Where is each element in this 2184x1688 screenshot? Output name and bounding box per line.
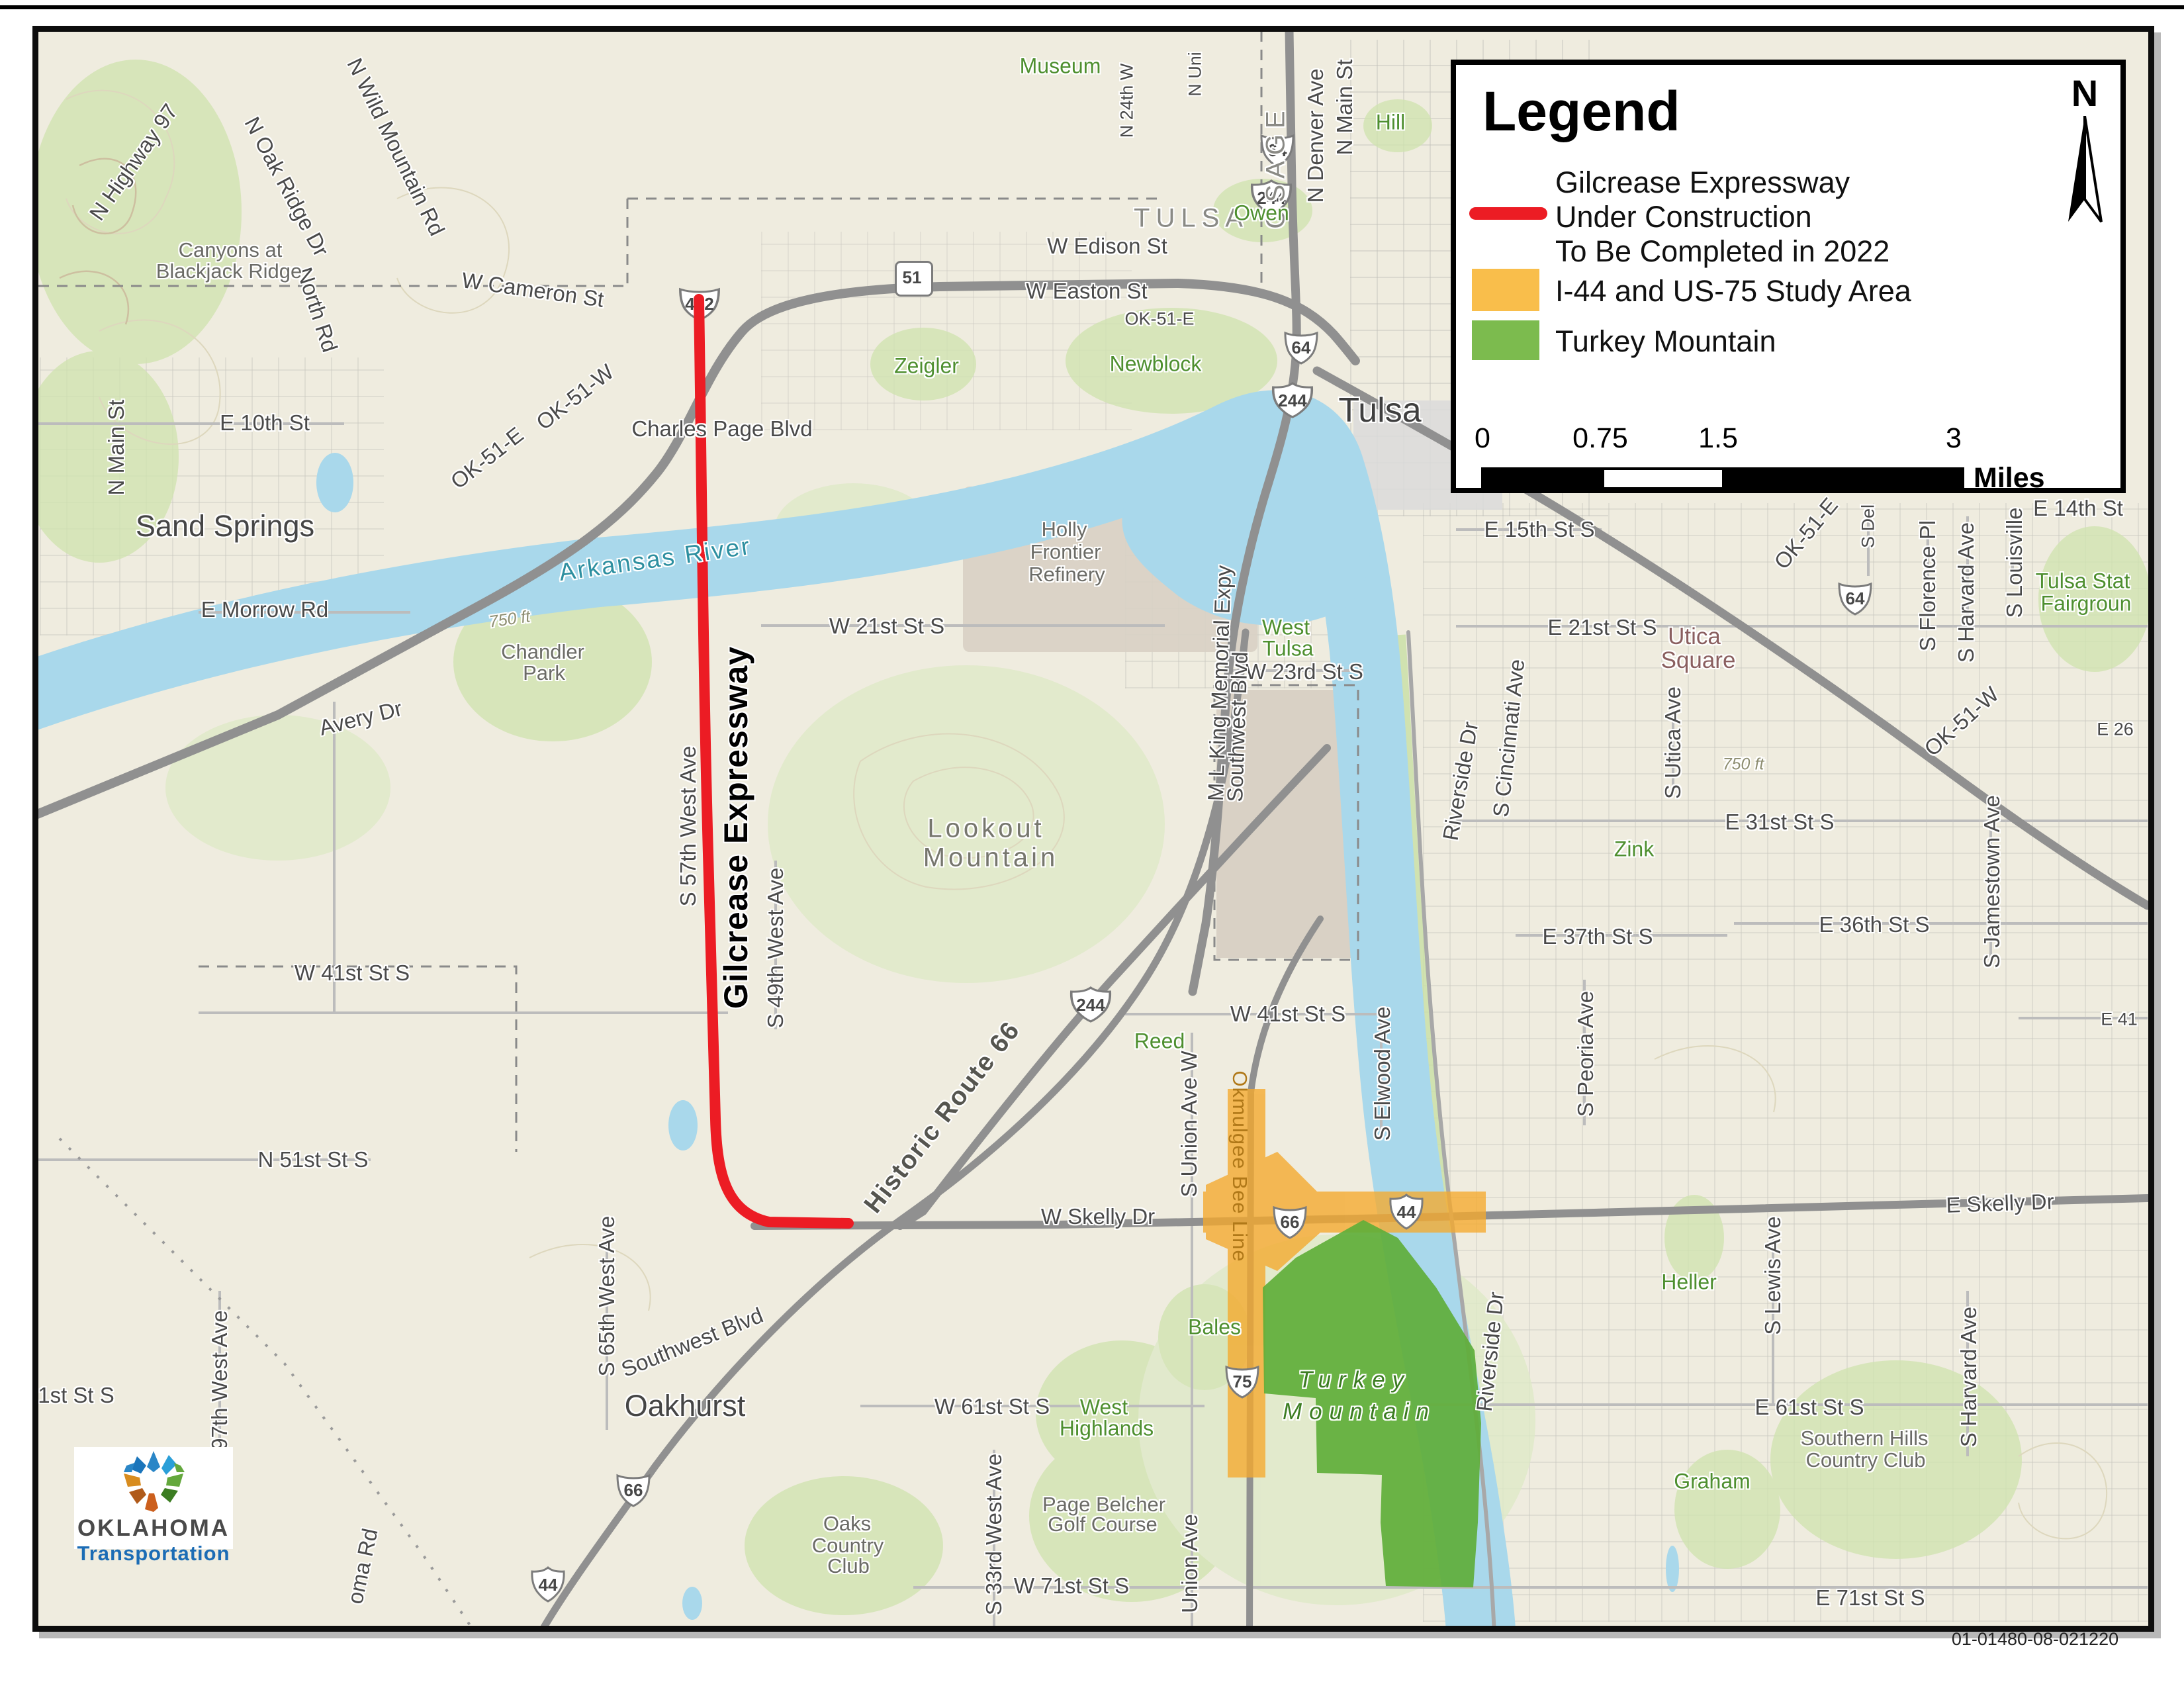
map-label: Hill: [1376, 111, 1405, 135]
map-label: Country Club: [1806, 1448, 1926, 1472]
map-label: Sand Springs: [136, 509, 314, 543]
map-label: Oaks: [823, 1512, 871, 1536]
map-label: W 41st St S: [295, 961, 410, 986]
legend-title: Legend: [1482, 79, 1680, 144]
map-label: Chandler: [501, 640, 584, 664]
map-label: Turkey: [1298, 1367, 1411, 1393]
north-arrow-icon: [2062, 116, 2108, 225]
map-label: Arkansas River: [557, 532, 753, 586]
map-label: OK-51-E: [1769, 493, 1843, 575]
odot-logo: OKLAHOMA Transportation: [74, 1447, 233, 1549]
map-label: Reed: [1134, 1029, 1185, 1054]
map-label: N Uni: [1185, 52, 1206, 97]
page: 412516424464244642446644664475 N Highway…: [0, 0, 2184, 1688]
scale-tick-2: 1.5: [1698, 422, 1738, 455]
map-label: W Edison St: [1047, 234, 1167, 259]
map-label: S Peoria Ave: [1573, 991, 1598, 1117]
map-label: W Easton St: [1026, 279, 1147, 304]
map-label: W 71st St S: [1014, 1573, 1129, 1599]
map-label: Tulsa: [1338, 391, 1421, 430]
map-label: Okmulgee Bee Line: [1228, 1070, 1251, 1262]
scale-tick-1: 0.75: [1572, 422, 1628, 455]
map-label: Owen: [1234, 201, 1289, 226]
map-label: Fairgroun: [2041, 592, 2132, 616]
map-label: Bales: [1188, 1315, 1241, 1340]
map-label: Southern Hills: [1801, 1427, 1929, 1450]
map-label: S Jamestown Ave: [1979, 795, 2005, 968]
map-label: E 15th St S: [1484, 517, 1595, 542]
map-label: N Denver Ave: [1303, 69, 1328, 203]
map-label: W 23rd St S: [1246, 659, 1363, 684]
map-label: 1st St S: [38, 1383, 114, 1408]
map-label: N Highway 97: [85, 99, 183, 225]
map-label: Highlands: [1060, 1417, 1154, 1441]
map-label: S 33rd West Ave: [981, 1454, 1007, 1616]
map-label: N 24th W: [1117, 64, 1138, 138]
map-label: E 26: [2097, 720, 2134, 740]
map-label: W 61st St S: [934, 1394, 1050, 1419]
map-label: Mountain: [923, 843, 1059, 873]
map-label: Frontier: [1030, 540, 1101, 564]
odot-star-icon: [117, 1450, 190, 1513]
map-label: Zeigler: [894, 354, 959, 379]
map-label: Canyons at: [179, 238, 283, 262]
map-label: S Elwood Ave: [1370, 1006, 1395, 1141]
map-label: E 37th St S: [1543, 924, 1653, 949]
map-label: Mountain: [1283, 1399, 1436, 1425]
scale-unit: Miles: [1974, 462, 2045, 494]
map-label: Museum: [1020, 54, 1101, 79]
map-label: S 65th West Ave: [594, 1216, 619, 1377]
map-label: Union Ave: [1177, 1514, 1203, 1613]
legend-panel: Legend N Gilcrease Expressway Under Cons…: [1451, 60, 2126, 493]
map-label: Graham: [1674, 1470, 1751, 1494]
map-label: N 51st St S: [258, 1147, 369, 1172]
map-label: S Utica Ave: [1661, 686, 1686, 799]
map-label: Holly: [1042, 518, 1087, 541]
map-label: Utica: [1668, 624, 1721, 650]
map-label: S Union Ave W: [1177, 1051, 1202, 1197]
map-label: E Skelly Dr: [1946, 1189, 2054, 1218]
map-label: E 21st St S: [1547, 615, 1657, 640]
top-rule: [0, 5, 2184, 9]
map-label: Southwest Blvd: [617, 1303, 766, 1382]
map-label: TULSA: [1134, 204, 1249, 234]
map-label: Avery Dr: [316, 696, 404, 741]
map-label: 97th West Ave: [207, 1310, 232, 1450]
map-label: E 71st St S: [1815, 1585, 1925, 1611]
map-label: Charles Page Blvd: [631, 416, 812, 442]
map-label: Blackjack Ridge: [156, 259, 302, 283]
scale-tick-3: 3: [1946, 422, 1962, 455]
map-label: S Lewis Ave: [1760, 1216, 1786, 1335]
map-label: E 10th St: [220, 410, 310, 436]
map-label: E 31st St S: [1725, 810, 1834, 835]
legend-study-area-swatch: [1472, 269, 1539, 311]
legend-construction-swatch: [1469, 207, 1547, 220]
map-label: Refinery: [1028, 563, 1105, 586]
map-label: Newblock: [1110, 352, 1202, 377]
north-label: N: [2048, 71, 2121, 115]
map-label: Riverside Dr: [1438, 720, 1484, 842]
map-label: N Main St: [1332, 60, 1357, 156]
map-label: Club: [827, 1554, 870, 1578]
map-label: oma Rd: [342, 1526, 383, 1607]
map-label: N Wild Mountain Rd: [342, 54, 450, 240]
map-label: W Cameron St: [460, 267, 606, 312]
map-label: E 14th St: [2033, 496, 2123, 521]
map-label: W 21st St S: [829, 614, 944, 639]
map-label: S Cincinnati Ave: [1488, 658, 1530, 818]
map-label: Golf Course: [1048, 1513, 1157, 1536]
map-label: S Harvard Ave: [1954, 522, 1979, 663]
map-label: S Del: [1858, 504, 1879, 548]
map-label: E 61st St S: [1754, 1395, 1864, 1420]
map-label: 750 ft: [488, 607, 531, 632]
north-arrow: N: [2048, 71, 2121, 228]
map-label: N Main St: [104, 400, 129, 496]
map-label: OK-51-E: [1124, 309, 1194, 330]
map-label: Tulsa: [1262, 637, 1313, 661]
map-label: S 57th West Ave: [676, 746, 701, 907]
map-label: S Harvard Ave: [1956, 1307, 1981, 1447]
logo-line2: Transportation: [74, 1542, 233, 1566]
map-label: OK-51-W: [1919, 682, 2004, 761]
map-label: S 49th West Ave: [763, 868, 788, 1029]
map-label: OK-51-W: [531, 359, 619, 436]
map-label: Lookout: [927, 814, 1044, 844]
map-label: Historic Route 66: [858, 1016, 1026, 1219]
legend-study-area-label: I-44 and US-75 Study Area: [1555, 274, 1911, 308]
map-id-number: 01-01480-08-021220: [1919, 1629, 2151, 1650]
map-label: Southwest Blvd: [1222, 651, 1253, 803]
map-label: Zink: [1614, 837, 1654, 862]
map-label: Square: [1661, 647, 1736, 674]
legend-construction-label: Gilcrease Expressway Under Construction …: [1555, 165, 1889, 269]
scale-tick-0: 0: [1475, 422, 1490, 455]
map-label: OK-51-E: [446, 422, 529, 494]
map-label: E Morrow Rd: [201, 597, 329, 622]
map-label: W Skelly Dr: [1041, 1204, 1155, 1229]
map-label: E 41: [2101, 1009, 2138, 1030]
map-label: S Florence Pl: [1915, 520, 1940, 651]
map-label: Tulsa Stat: [2036, 569, 2130, 594]
logo-line1: OKLAHOMA: [74, 1515, 233, 1542]
map-label: Oakhurst: [625, 1389, 746, 1423]
map-label: Riverside Dr: [1472, 1291, 1510, 1413]
legend-turkey-label: Turkey Mountain: [1555, 324, 1776, 359]
map-label: S Louisville: [2002, 508, 2027, 618]
scale-bar: [1481, 467, 1964, 490]
map-label: E 36th St S: [1819, 912, 1930, 937]
map-label: W 41st St S: [1230, 1002, 1345, 1027]
map-label: Park: [523, 661, 565, 685]
legend-turkey-swatch: [1472, 320, 1539, 360]
map-label: 750 ft: [1723, 755, 1764, 774]
map-label: Heller: [1661, 1270, 1717, 1295]
map-label: Gilcrease Expressway: [717, 646, 755, 1009]
